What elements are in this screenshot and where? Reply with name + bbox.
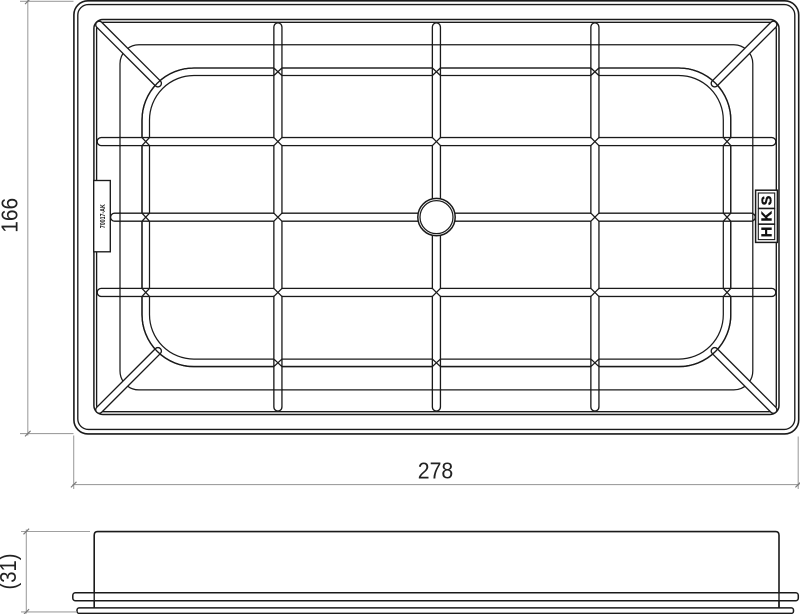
svg-text:166: 166 bbox=[0, 198, 23, 233]
svg-text:H: H bbox=[759, 227, 775, 237]
svg-text:K: K bbox=[759, 211, 775, 222]
svg-text:S: S bbox=[759, 195, 775, 205]
svg-text:70017-AK: 70017-AK bbox=[100, 204, 107, 228]
svg-text:(31): (31) bbox=[0, 554, 21, 590]
svg-text:278: 278 bbox=[418, 458, 454, 484]
